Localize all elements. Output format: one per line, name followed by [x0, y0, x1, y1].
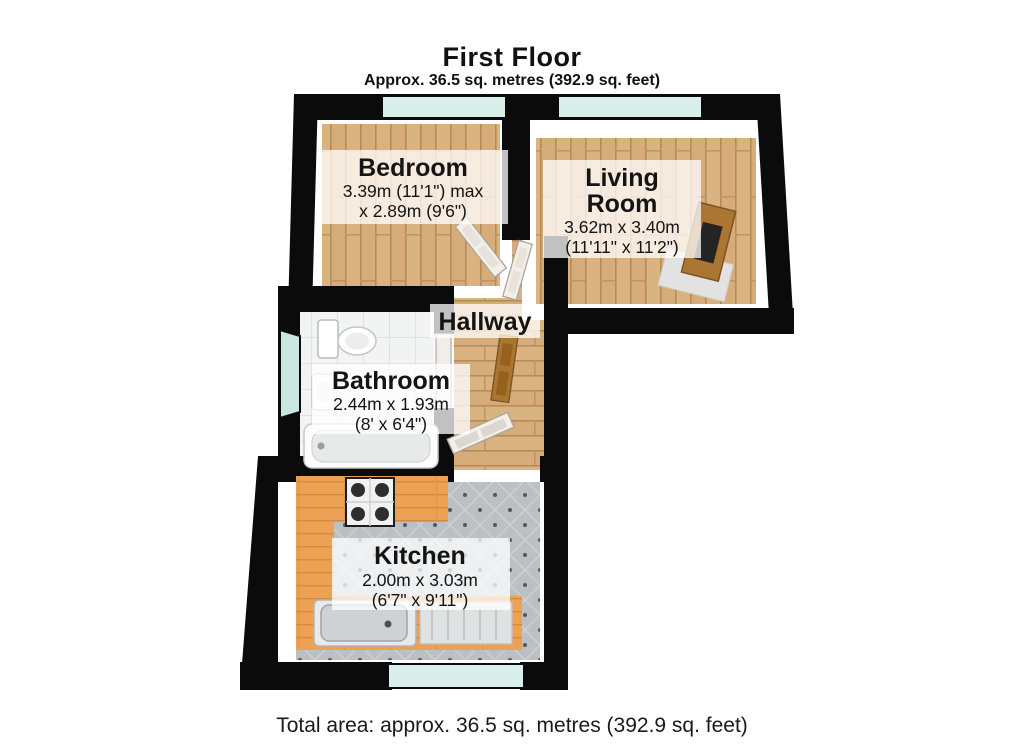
kitchen-label: Kitchen 2.00m x 3.03m (6'7" x 9'11"): [332, 538, 510, 610]
wall-hallway-right: [544, 236, 568, 486]
toilet-cistern: [318, 320, 338, 358]
wall-kitchen-bottom-left: [240, 662, 392, 690]
living-room-window: [558, 96, 702, 118]
wall-kitchen-left: [240, 456, 278, 690]
wall-kitchen-right: [544, 456, 568, 690]
bathroom-name: Bathroom: [332, 367, 450, 395]
kitchen-dim-1: 2.00m x 3.03m: [362, 570, 478, 590]
living-name-2: Room: [587, 190, 658, 218]
bedroom-window: [382, 96, 506, 118]
living-dim-2: (11'11" x 11'2"): [565, 237, 678, 257]
toilet-seat: [345, 333, 369, 350]
living-name-1: Living: [585, 164, 659, 192]
kitchen-window: [388, 664, 524, 688]
kitchen-sink-faucet: [385, 621, 392, 628]
bedroom-dim-2: x 2.89m (9'6"): [359, 201, 467, 221]
kitchen-dim-2: (6'7" x 9'11"): [372, 590, 469, 610]
kitchen-name: Kitchen: [374, 542, 466, 570]
bedroom-dim-1: 3.39m (11'1") max: [343, 181, 484, 201]
hallway-name: Hallway: [438, 308, 531, 336]
stove-burner: [375, 483, 389, 497]
bedroom-name: Bedroom: [358, 154, 468, 182]
floorplan-page: First Floor Approx. 36.5 sq. metres (392…: [0, 0, 1024, 746]
bathroom-dim-1: 2.44m x 1.93m: [333, 394, 449, 414]
bedroom-label: Bedroom 3.39m (11'1") max x 2.89m (9'6"): [318, 150, 508, 224]
floor-plan: Bedroom 3.39m (11'1") max x 2.89m (9'6")…: [0, 0, 1024, 746]
kitchen-sink-basin: [321, 605, 407, 641]
wall-living-bottom: [544, 308, 794, 334]
stove-burner: [351, 483, 365, 497]
total-area-text: Total area: approx. 36.5 sq. metres (392…: [0, 714, 1024, 738]
living-room-label: Living Room 3.62m x 3.40m (11'11" x 11'2…: [543, 160, 701, 258]
bathroom-window: [280, 330, 300, 418]
living-dim-1: 3.62m x 3.40m: [564, 217, 680, 237]
hallway-label: Hallway: [430, 304, 540, 338]
wall-bedroom-bottom: [294, 286, 452, 312]
bathroom-dim-2: (8' x 6'4"): [355, 414, 427, 434]
wall-top: [294, 94, 780, 120]
bathroom-label: Bathroom 2.44m x 1.93m (8' x 6'4"): [312, 364, 470, 434]
stove-burner: [375, 507, 389, 521]
bathtub-inner: [312, 430, 430, 462]
stove-burner: [351, 507, 365, 521]
bathtub-faucet: [318, 443, 325, 450]
